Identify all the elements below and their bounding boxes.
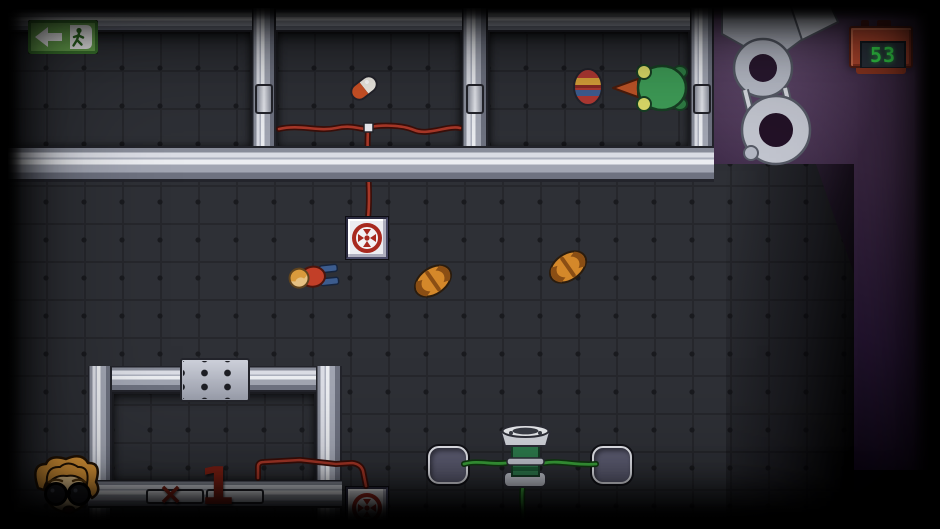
dot-vent-panel [180, 358, 250, 402]
room-middle-floor [276, 30, 462, 148]
socket-pad-left[interactable] [428, 446, 468, 484]
pen-door-3[interactable] [693, 84, 711, 114]
socket-pad-right[interactable] [592, 446, 632, 484]
red-button-panel[interactable] [346, 217, 388, 259]
timer-frame: 53 [849, 26, 913, 68]
separator-wall-2 [462, 8, 488, 158]
red-target-icon [350, 491, 384, 525]
lives-hud: × 1 [24, 452, 235, 518]
timer-base [856, 68, 906, 74]
floor-shadow-edge [726, 164, 854, 529]
pen-door-2[interactable] [466, 84, 484, 114]
lives-count: 1 [199, 464, 235, 511]
lives-counter: × 1 [158, 464, 235, 512]
lives-times-symbol: × [158, 477, 183, 512]
exit-sign [28, 20, 98, 54]
red-target-icon [350, 221, 384, 255]
top-wall [8, 8, 714, 32]
timer-value: 53 [870, 45, 896, 65]
timer-device: 53 [849, 20, 913, 78]
room-right-floor [488, 30, 690, 148]
red-button-panel-bottom[interactable] [346, 487, 388, 529]
pen-door-1[interactable] [255, 84, 273, 114]
exit-sign-icon [28, 20, 98, 54]
game-viewport[interactable]: 53 × 1 [0, 0, 940, 529]
vent-dots [183, 361, 247, 399]
player-portrait-icon [24, 452, 110, 518]
pens-bottom-wall [8, 146, 714, 182]
separator-wall-1 [252, 8, 276, 158]
timer-screen: 53 [860, 41, 906, 69]
